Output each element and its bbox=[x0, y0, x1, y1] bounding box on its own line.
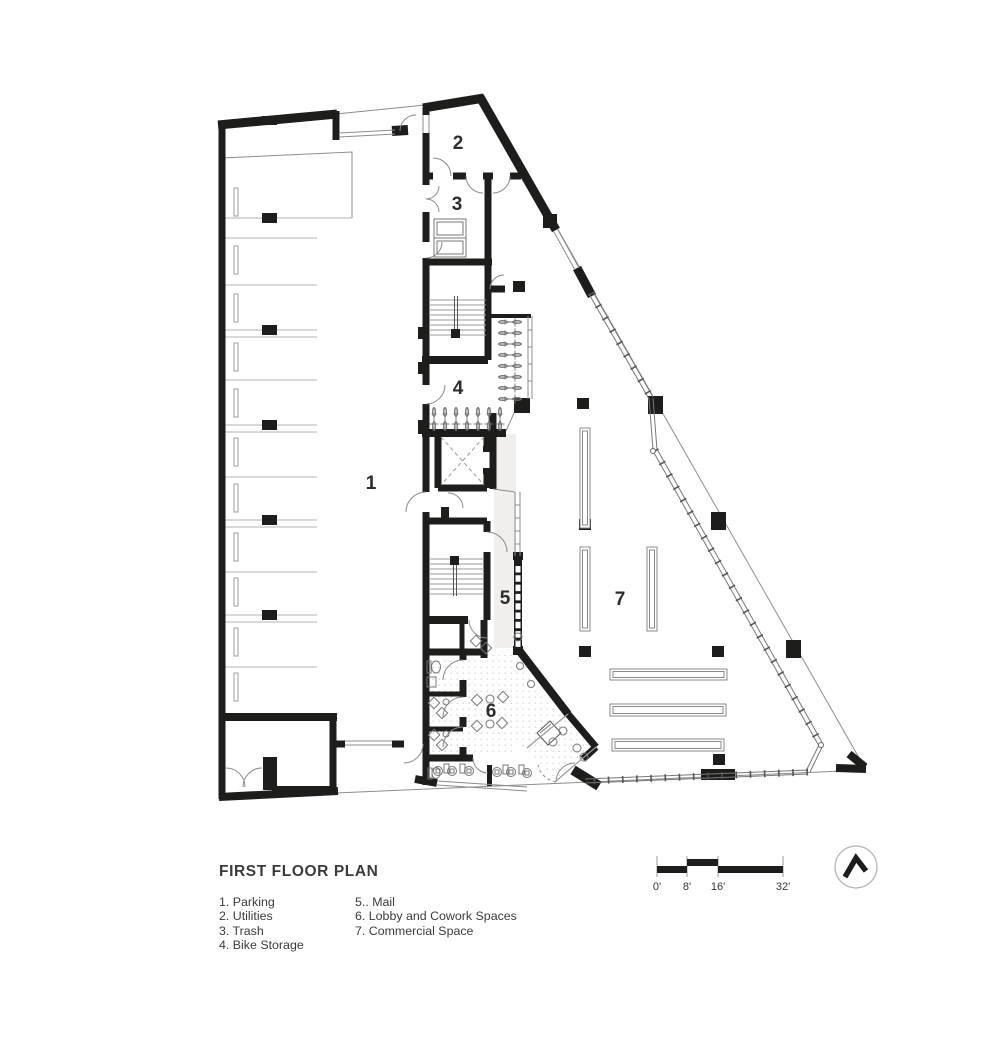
room-label-trash: 3 bbox=[452, 194, 463, 215]
walls bbox=[218, 97, 866, 799]
legend-item: 4. Bike Storage bbox=[219, 938, 304, 952]
display-fixtures bbox=[580, 428, 727, 751]
bike-racks bbox=[430, 318, 522, 431]
stairs-upper bbox=[429, 296, 486, 338]
room-label-bike-storage: 4 bbox=[453, 378, 464, 399]
room-label-utilities: 2 bbox=[453, 133, 464, 154]
room-label-lobby: 6 bbox=[486, 701, 497, 722]
legend-item: 3. Trash bbox=[219, 924, 304, 938]
scale-label-16: 16' bbox=[711, 881, 725, 893]
legend-item: 5.. Mail bbox=[355, 895, 517, 909]
scale-label-8: 8' bbox=[683, 881, 691, 893]
legend-item: 1. Parking bbox=[219, 895, 304, 909]
stairs-lower bbox=[429, 556, 484, 596]
floor-plan-drawing: 1 2 3 4 5 6 7 0' 8' 16' 32' bbox=[0, 0, 1000, 1050]
parking-stalls bbox=[222, 188, 352, 701]
floor-plan-sheet: 1 2 3 4 5 6 7 0' 8' 16' 32' FIRST FLOOR … bbox=[0, 0, 1000, 1050]
legend-item: 2. Utilities bbox=[219, 909, 304, 923]
room-label-mail: 5 bbox=[500, 588, 511, 609]
legend-item: 6. Lobby and Cowork Spaces bbox=[355, 909, 517, 923]
legend-item: 7. Commercial Space bbox=[355, 924, 517, 938]
room-label-commercial: 7 bbox=[615, 589, 626, 610]
room-label-parking: 1 bbox=[366, 473, 377, 494]
drawing-title: FIRST FLOOR PLAN bbox=[219, 863, 378, 881]
legend-column-2: 5.. Mail 6. Lobby and Cowork Spaces 7. C… bbox=[355, 895, 517, 938]
scale-label-0: 0' bbox=[653, 881, 661, 893]
scale-label-32: 32' bbox=[776, 881, 790, 893]
elevator bbox=[441, 437, 484, 485]
legend-column-1: 1. Parking 2. Utilities 3. Trash 4. Bike… bbox=[219, 895, 304, 953]
scale-bar: 0' 8' 16' 32' bbox=[653, 856, 790, 893]
north-arrow-icon bbox=[835, 846, 877, 888]
